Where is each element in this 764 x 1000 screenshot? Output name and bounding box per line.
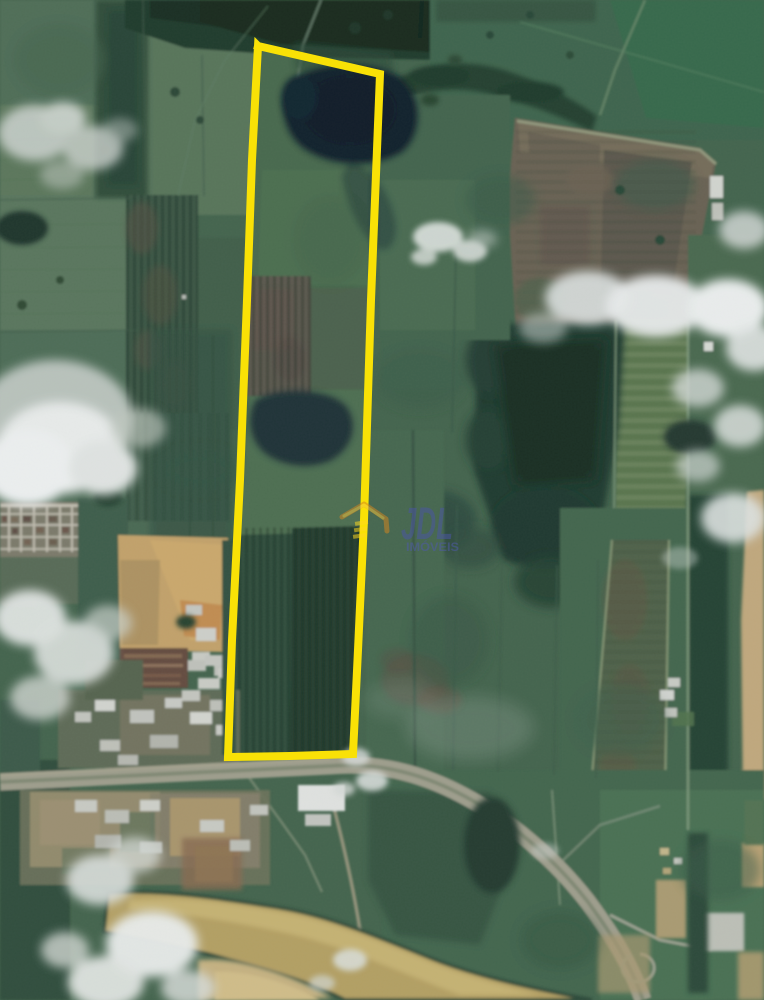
svg-text:IMÓVEIS: IMÓVEIS <box>406 539 459 554</box>
